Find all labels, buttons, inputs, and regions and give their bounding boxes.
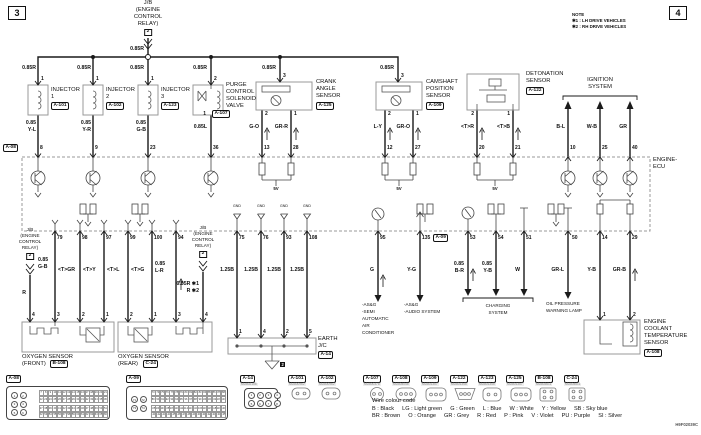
injector3-connector: A-123 [161,102,179,110]
pin-crank-3: 3 [283,74,286,79]
wiring-diagram-page: Wire colour code B : BlackLG : Light gre… [0,0,701,435]
purge-label3: SOLENOID [226,97,256,103]
earth-label2: J/C [318,344,327,350]
wire-inj2-size: 0.85 [81,121,91,126]
a14-connector-pin-8: 8 [274,400,281,407]
jb-relay-br-line2: (ENGINE [193,232,212,237]
partno-a123: MU801345 [478,383,496,386]
ecu-pin-75: 75 [239,236,245,241]
ecu-pin-53: 53 [470,236,476,241]
ecu-pin-40: 40 [632,146,638,151]
ecu-pin-94: 94 [178,236,184,241]
legend-row-1: B : BlackLG : Light greenG : GreenL : Bl… [372,406,630,412]
a14-connector-pin-1: 1 [248,392,255,399]
ecu-pin-100: 100 [154,236,162,241]
wire-chg1-size: 0.85 [454,262,464,267]
pin-crank-1: 1 [294,112,297,117]
o2-rear-connector: C-24 [143,360,158,368]
sheet-number-left: 3 [8,6,26,20]
wire-inj1-size: 0.85 [26,121,36,126]
injector2-label1: INJECTOR [106,88,135,94]
jb-relay-br-terminal: 2 [199,251,207,258]
pin-inj1-1: 1 [41,77,44,82]
doc-code: H9F02039C [675,423,698,427]
a08-connector-pin-6: 6 [20,409,27,416]
partno-a108: MU804046 [392,383,410,386]
wire-o2r-4-lh: 0.85R ✱1 [176,282,199,287]
wire-inj1-color: Y-L [28,128,36,133]
legend-entry-w: W : White [510,406,534,412]
wire-o2r-4-rh: R ✱2 [187,289,199,294]
a09-connector-grid-2: 1051061071081091101111121131141151161171… [151,405,226,418]
ecu-pin-54: 54 [498,236,504,241]
cam-connector: A-109 [426,102,444,110]
injector3-label2: 3 [161,95,164,101]
a08-connector-pin-66: 66 [103,412,108,419]
pin-cam-2: 2 [388,112,391,117]
a14-connector-pin-4: 4 [274,392,281,399]
wire-earth-2: 1.25B [244,268,258,273]
ecu-connector-a09: A-09 [433,234,448,242]
a08-connector-pin-3: 3 [11,401,18,408]
ecu-pin-93: 93 [286,236,292,241]
injector1-label2: 1 [51,95,54,101]
earth-label1: EARTH [318,337,338,343]
pin-inj3-1: 1 [151,77,154,82]
crank-label2: ANGLE [316,87,336,93]
legend-entry-l: L : Blue [483,406,502,412]
wire-o2r-1-size: 0.85 [155,262,165,267]
a14-connector-pin-3: 3 [265,392,272,399]
ecu-pin-108: 108 [309,236,317,241]
jb-relay-bl-line4: RELAY) [22,246,38,251]
a14-connector-pin-2: 2 [257,392,264,399]
legend-row-2: BR : BrownO : OrangeGR : GreyR : RedP : … [372,413,630,419]
pin-cam-3: 3 [401,74,404,79]
ecu-pin-14: 14 [602,236,608,241]
ecu-5v-cam: 5V [396,187,401,191]
injector2-connector: A-102 [106,102,124,110]
ecu-pin-98: 98 [82,236,88,241]
wire-ect-1: Y-B [587,268,596,273]
partno-a125: MU801357 [506,383,524,386]
charging-label2: SYSTEM [489,311,508,316]
wire-085r-cam: 0.85R [380,66,394,71]
injector3-label1: INJECTOR [161,88,190,94]
pin-o2f-3: 3 [57,313,60,318]
ecu-pin-9: 9 [95,146,98,151]
purge-label4: VALVE [226,104,244,110]
pin-earth-2: 2 [286,330,289,335]
det-connector: A-122 [526,87,544,95]
ecu-connector-a08: A-08 [3,144,18,152]
ecu-pin-10: 10 [570,146,576,151]
aircon-line4: AIR [362,324,370,329]
a09-connector-pin-104: 104 [221,396,226,403]
ect-label2: COOLANT [644,327,672,333]
ecu-pin-135: 135 [422,236,430,241]
ect-label4: SENSOR [644,341,668,347]
wire-earth-4: 1.25B [290,268,304,273]
legend-entry-r: R : Red [477,413,496,419]
pin-o2f-2: 2 [82,313,85,318]
jb-relay-br-line3: CONTROL [192,238,214,243]
ecu-pin-50: 50 [572,236,578,241]
ecu-pin-20: 20 [479,146,485,151]
pin-purge-2: 2 [214,77,217,82]
ecu-pin-99: 99 [130,236,136,241]
audio-line2: -AUDIO SYSTEM [404,310,440,315]
pin-ect-1: 1 [603,313,606,318]
wire-ign-1: B-L [556,125,565,130]
pinout-tag-a09: A-09 [126,375,141,383]
a09-connector: 7172737473747576777879808182838485868788… [126,386,228,420]
wire-chg2-size: 0.85 [482,262,492,267]
a09-connector-pin-72: 72 [140,396,147,403]
ecu-pin-13: 13 [264,146,270,151]
ecu-pin-36: 36 [213,146,219,151]
aircon-line1: -AS&G [362,303,376,308]
legend-entry-v: V : Violet [531,413,553,419]
ecu-internals [31,157,637,231]
legend-entry-lg: LG : Light green [402,406,442,412]
pin-det-1: 1 [507,112,510,117]
ecu-pin-23: 23 [150,146,156,151]
o2-front-label2: (FRONT) [22,362,46,368]
partno-a14: MU802156 [240,383,258,386]
ecu-gnd-2: GND [257,205,265,209]
component-internals [30,79,637,369]
pin-o2f-4: 4 [32,313,35,318]
a102-face [322,388,340,399]
sheet-number-right: 4 [669,6,687,20]
a08-connector-grid-1: 7891011121314151617181920212223242526272… [39,390,108,403]
legend-entry-si: SI : Silver [598,413,622,419]
legend-entry-sb: SB : Sky blue [574,406,608,412]
jb-relay-br-line4: RELAY) [195,244,211,249]
ecu-pin-27: 27 [415,146,421,151]
aircon-line3: AUTOMATIC [362,317,389,322]
legend-entry-b: B : Black [372,406,394,412]
ground-point-2: 2 [280,362,285,367]
note-title: NOTE [572,13,584,17]
wire-det-2: <T>R [461,125,474,130]
jb-relay-top-line4: RELAY) [138,22,159,28]
legend-entry-o: O : Orange [408,413,436,419]
a08-connector-pin-2: 2 [20,392,27,399]
partno-c24: MU804611 [564,383,581,386]
crank-label3: SENSOR [316,94,340,100]
pin-o2r-1: 1 [154,313,157,318]
pinout-tag-a08: A-08 [6,375,21,383]
pin-inj2-1: 1 [96,77,99,82]
o2-rear-label2: (REAR) [118,362,138,368]
ect-connector: A-108 [644,349,662,357]
purge-connector: A-107 [212,110,230,118]
jb-relay-bl-line3: CONTROL [19,240,41,245]
ecu-pin-97: 97 [106,236,112,241]
ect-label1: ENGINE [644,320,666,326]
ecu-pin-79: 79 [57,236,63,241]
legend-entry-pu: PU : Purple [562,413,591,419]
injector1-label1: INJECTOR [51,88,80,94]
jb-relay-br-line1: J/B [200,226,207,231]
ecu-pin-51: 51 [526,236,532,241]
wire-o2f-2: <T>Y [83,268,96,273]
jb-relay-bl-terminal: 2 [26,253,34,260]
pin-earth-1: 1 [239,330,242,335]
legend-entry-y: Y : Yellow [542,406,566,412]
a08-connector-pin-36: 36 [103,396,108,403]
wire-o2f-3: <T>GR [58,268,75,273]
aircon-line2: -SEMI [362,310,375,315]
wire-ect-2: GR-B [613,268,626,273]
wire-085r-inj3: 0.85R [130,66,144,71]
wire-earth-1: 1.25B [220,268,234,273]
ect-label3: TEMPERATURE [644,334,687,340]
note-line2: ✱2 : RH DRIVE VEHICLES [572,25,626,29]
wire-colour-code: Wire colour code B : BlackLG : Light gre… [372,398,630,421]
wire-o2f-1: <T>L [107,268,119,273]
pin-o2r-3: 3 [178,313,181,318]
ecu-pin-8: 8 [40,146,43,151]
legend-title: Wire colour code [372,398,630,404]
wire-ign-3: GR [619,125,627,130]
legend-entry-g: G : Green [450,406,475,412]
wire-crank-1: GR-R [275,125,288,130]
legend-entry-gr: GR : Grey [444,413,469,419]
pin-o2r-2: 2 [130,313,133,318]
wire-inj2-color: Y-R [82,128,91,133]
wire-o2f-relay-size: 0.85 [38,258,48,263]
wire-ign-2: W-B [587,125,597,130]
wire-det-1: <T>B [497,125,510,130]
schematic-canvas [0,0,701,435]
legend-entry-br: BR : Brown [372,413,400,419]
wire-aircon: G [370,268,374,273]
jb-relay-top-terminal: 2 [144,29,152,36]
wire-oil: GR-L [551,268,564,273]
crank-label1: CRANK [316,80,336,86]
legend-entry-p: P : Pink [504,413,523,419]
purge-label1: PURGE [226,83,247,89]
wire-inj3-size: 0.85 [136,121,146,126]
a09-connector-pin-71: 71 [131,396,138,403]
partno-a102: MU800962 [318,383,336,386]
wire-085r-crank: 0.85R [262,66,276,71]
wire-o2f-relay-r: R [22,291,26,296]
ecu-pin-29: 29 [632,236,638,241]
wire-crank-2: G-O [249,125,259,130]
note-line1: ✱1 : LH DRIVE VEHICLES [572,19,626,23]
earth-connector: A-14 [318,351,333,359]
a14-connector-pin-5: 5 [248,400,255,407]
ecu-pin-28: 28 [293,146,299,151]
partno-a107: MU800378 [363,383,381,386]
wire-audio: Y-G [407,268,416,273]
cam-label2: POSITION [426,87,454,93]
ign-label2: SYSTEM [588,85,612,91]
ecu-label1: ENGINE- [653,158,677,164]
a09-connector-pin-135: 135 [221,412,226,419]
wire-purge-color: 0.85L [194,125,207,130]
ecu-pin-95: 95 [380,236,386,241]
pin-cam-1: 1 [416,112,419,117]
a08-connector-pin-4: 4 [20,401,27,408]
wire-chg2-color: Y-B [483,269,492,274]
wire-o2r-2: <T>G [131,268,144,273]
partno-a109: MU801357 [421,383,439,386]
wire-cam-2: L-Y [374,125,382,130]
a08-connector-grid-2: 3738394041424344454647484950515253545556… [39,405,108,418]
a14-connector: 12345678 [244,388,278,409]
pin-purge-1: 1 [203,112,206,117]
cam-label3: SENSOR [426,94,450,100]
crank-connector: A-125 [316,102,334,110]
det-label1: DETONATION [526,72,563,78]
pin-o2r-4: 4 [205,313,208,318]
jb-relay-bl-line1: J/B [27,228,34,233]
a09-connector-pin-74: 74 [140,405,147,412]
aircon-line5: CONDITIONER [362,331,394,336]
jb-relay-top-line1: J/B [144,1,152,7]
pin-det-2: 2 [471,112,474,117]
pin-o2f-1: 1 [106,313,109,318]
jb-relay-top-line3: CONTROL [134,15,162,21]
ecu-pin-21: 21 [515,146,521,151]
wire-o2r-1-color: L-R [155,269,164,274]
wire-085r-main: 0.85R [130,47,144,52]
wire-earth-3: 1.25B [267,268,281,273]
ecu-pin-12: 12 [387,146,393,151]
injector2-label2: 2 [106,95,109,101]
ecu-gnd-3: GND [280,205,288,209]
o2-front-connector: B-108 [50,360,68,368]
cam-label1: CAMSHAFT [426,80,458,86]
ecu-pin-25: 25 [602,146,608,151]
ecu-pin-76: 76 [263,236,269,241]
wire-chg1-color: B-R [455,269,464,274]
jb-relay-bl-line2: (ENGINE [20,234,39,239]
wire-cam-1: GR-O [396,125,410,130]
wire-085r-purge: 0.85R [193,66,207,71]
pin-ect-2: 2 [633,313,636,318]
partno-a101: MU800962 [288,383,306,386]
ecu-5v-crank: 5V [273,187,278,191]
wire-085r-inj2: 0.85R [77,66,91,71]
a08-connector-pin-5: 5 [11,409,18,416]
pin-earth-5: 5 [309,330,312,335]
wire-o2f-relay-color: G-B [38,265,48,270]
charging-label1: CHARGING [486,304,511,309]
pin-earth-4: 4 [263,330,266,335]
ecu-5v-det: 5V [492,187,497,191]
audio-line1: -AS&G [404,303,418,308]
a09-connector-grid-1: 7374757677787980818283848586878889909192… [151,390,226,403]
a09-connector-pin-73: 73 [131,405,138,412]
wire-inj3-color: G-B [136,128,146,133]
partno-b108: MU803611 [535,383,552,386]
pin-crank-2: 2 [265,112,268,117]
purge-label2: CONTROL [226,90,254,96]
wire-085r-inj1: 0.85R [22,66,36,71]
jb-relay-top-line2: (ENGINE [136,8,160,14]
a08-connector: 1234567891011121314151617181920212223242… [6,386,110,420]
ign-label1: IGNITION [587,78,613,84]
injector1-connector: A-101 [51,102,69,110]
oil-label2: WARNING LAMP [546,309,582,314]
ecu-label2: ECU [653,165,665,171]
a14-connector-pin-6: 6 [257,400,264,407]
a101-face [292,388,310,399]
a08-connector-pin-1: 1 [11,392,18,399]
a14-connector-pin-7: 7 [265,400,272,407]
det-label2: SENSOR [526,79,550,85]
ecu-gnd-1: GND [233,205,241,209]
oil-label1: OIL PRESSURE [546,302,580,307]
wire-chg3: W [515,268,520,273]
ecu-gnd-4: GND [303,205,311,209]
partno-a122: MU801345 [450,383,468,386]
